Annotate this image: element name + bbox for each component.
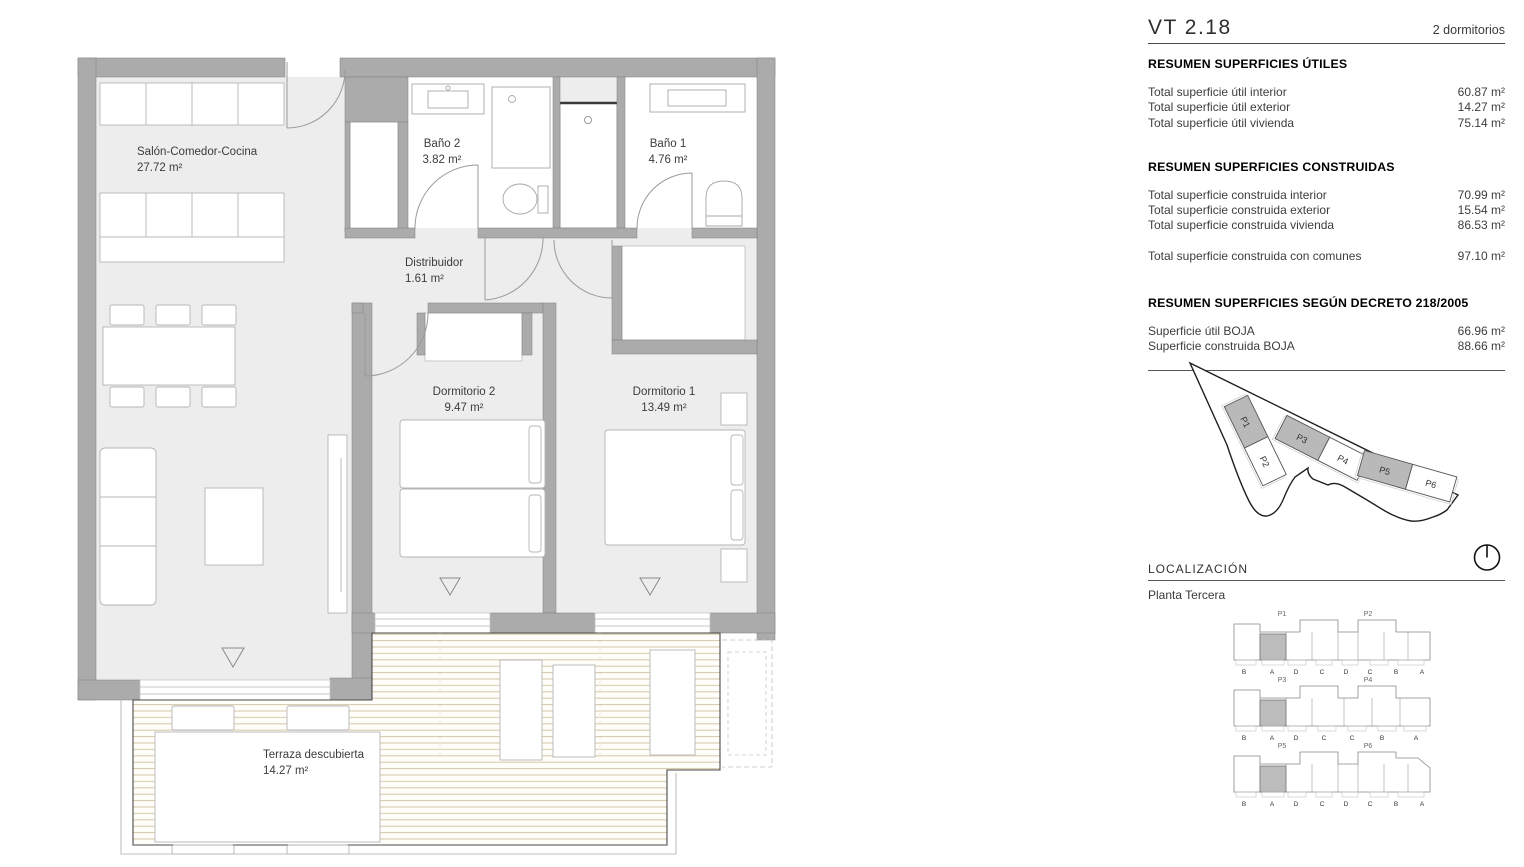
coffee-table: [205, 488, 263, 565]
terrace-chair: [172, 845, 234, 854]
terrace-chair: [172, 706, 234, 730]
unit-letter: D: [1294, 669, 1299, 676]
unit-title: VT 2.18: [1148, 20, 1232, 35]
table-row: Total superficie construida exterior 15.…: [1148, 203, 1505, 218]
portal-label: P2: [1364, 611, 1373, 618]
dorm1-window: [595, 613, 710, 633]
localizacion-block: LOCALIZACIÓN Planta Tercera: [1148, 562, 1505, 602]
pillow: [529, 495, 541, 552]
key-plan-row: P3 P4 B A D C C B A: [1234, 677, 1430, 742]
floor-plan: Salón-Comedor-Cocina 27.72 m² Baño 2 3.8…: [0, 0, 1130, 867]
kitchen-island: [100, 237, 284, 262]
portal-label: P4: [1364, 677, 1373, 684]
unit-letter: C: [1322, 735, 1327, 742]
chair: [110, 387, 144, 407]
sun-lounger-projection: [728, 652, 766, 755]
unit-letter: D: [1294, 801, 1299, 808]
room-area: 9.47 m²: [445, 402, 484, 414]
highlighted-unit: [1260, 700, 1286, 726]
dorm2-bed: [400, 420, 545, 488]
key-plan-row: P1 P2 B A D C D C B A: [1234, 611, 1430, 676]
room-label: Dormitorio 2: [433, 386, 496, 398]
terrace-chair: [287, 706, 349, 730]
chair: [202, 305, 236, 325]
nightstand: [721, 393, 747, 425]
dorm1-closet: [622, 246, 745, 340]
unit-letter: B: [1242, 735, 1246, 742]
room-area: 1.61 m²: [405, 273, 444, 285]
unit-letter: D: [1344, 669, 1349, 676]
section-title-utiles: RESUMEN SUPERFICIES ÚTILES: [1148, 57, 1505, 72]
tv-sideboard: [328, 435, 347, 613]
entry-closet: [350, 122, 398, 232]
unit-letter: D: [1294, 735, 1299, 742]
table-row: Total superficie construida interior 70.…: [1148, 188, 1505, 203]
unit-letter: B: [1242, 801, 1246, 808]
site-plan: P1 P2 P3 P4 P5 P6: [1185, 353, 1515, 538]
portal-label: P6: [1364, 743, 1373, 750]
localizacion-title: LOCALIZACIÓN: [1148, 562, 1505, 581]
section-title-decreto: RESUMEN SUPERFICIES SEGÚN DECRETO 218/20…: [1148, 296, 1505, 311]
unit-letter: C: [1368, 801, 1373, 808]
summary-panel: VT 2.18 2 dormitorios RESUMEN SUPERFICIE…: [1148, 0, 1505, 371]
key-plan-row: P5 P6 B A D C D C B A: [1234, 743, 1430, 808]
plan-sheet: Salón-Comedor-Cocina 27.72 m² Baño 2 3.8…: [0, 0, 1524, 867]
unit-letter: B: [1394, 801, 1398, 808]
unit-letter: C: [1320, 669, 1325, 676]
nightstand: [721, 549, 747, 582]
unit-letter: C: [1350, 735, 1355, 742]
dining-table: [103, 327, 235, 385]
table-row: Total superficie útil interior 60.87 m²: [1148, 85, 1505, 100]
sun-lounger: [650, 650, 695, 755]
bath2-faucet-icon: [446, 86, 450, 90]
chair: [202, 387, 236, 407]
table-row: Total superficie útil exterior 14.27 m²: [1148, 100, 1505, 115]
table-row: Superficie útil BOJA 66.96 m²: [1148, 324, 1505, 339]
sun-lounger: [553, 665, 595, 757]
bath1-toilet: [706, 181, 742, 226]
laundry-column: [560, 103, 617, 228]
room-label: Salón-Comedor-Cocina: [137, 146, 258, 158]
unit-letter: B: [1380, 735, 1384, 742]
unit-letter: A: [1414, 735, 1419, 742]
room-area: 3.82 m²: [423, 154, 462, 166]
room-area: 13.49 m²: [641, 402, 687, 414]
unit-letter: A: [1270, 801, 1275, 808]
bath2-toilet-tank: [538, 186, 548, 213]
sofa: [100, 448, 156, 605]
table-row: Total superficie útil vivienda 75.14 m²: [1148, 116, 1505, 131]
chair: [110, 305, 144, 325]
room-label: Distribuidor: [405, 257, 463, 269]
unit-letter: A: [1420, 669, 1425, 676]
unit-letter: A: [1270, 735, 1275, 742]
portal-label: P1: [1278, 611, 1287, 618]
table-row-total: Total superficie construida con comunes …: [1148, 249, 1505, 264]
sun-lounger: [500, 660, 542, 760]
unit-letter: A: [1420, 801, 1425, 808]
location-key-plans: P1 P2 B A D C D C B A P3: [1232, 608, 1434, 820]
bath2-shower: [492, 87, 550, 168]
chair: [156, 305, 190, 325]
bath2-sink-basin: [428, 91, 468, 108]
unit-letter: B: [1242, 669, 1246, 676]
unit-letter: A: [1270, 669, 1275, 676]
dorm2-window: [375, 613, 490, 633]
construidas-rows: Total superficie construida interior 70.…: [1148, 188, 1505, 264]
dorm2-wardrobe: [425, 313, 522, 361]
dorm1-bed: [605, 430, 745, 545]
room-label: Terraza descubierta: [263, 749, 365, 761]
decreto-rows: Superficie útil BOJA 66.96 m² Superficie…: [1148, 324, 1505, 355]
section-title-construidas: RESUMEN SUPERFICIES CONSTRUIDAS: [1148, 160, 1505, 175]
terrace-projection: [722, 640, 772, 767]
bath2-toilet: [503, 184, 537, 214]
terrace-chair: [287, 845, 349, 854]
floor-name: Planta Tercera: [1148, 588, 1505, 602]
pillow: [529, 426, 541, 483]
sheet-header: VT 2.18 2 dormitorios: [1148, 0, 1505, 44]
pillow: [731, 490, 743, 540]
unit-letter: C: [1368, 669, 1373, 676]
room-area: 4.76 m²: [649, 154, 688, 166]
table-row: Total superficie construida vivienda 86.…: [1148, 218, 1505, 233]
highlighted-unit: [1260, 634, 1286, 660]
room-label: Dormitorio 1: [633, 386, 696, 398]
pillow: [731, 435, 743, 485]
room-area: 14.27 m²: [263, 765, 309, 777]
salon-window: [140, 680, 330, 700]
portal-label: P3: [1278, 677, 1287, 684]
utiles-rows: Total superficie útil interior 60.87 m² …: [1148, 85, 1505, 131]
unit-letter: B: [1394, 669, 1398, 676]
unit-letter: C: [1320, 801, 1325, 808]
bath1-sink-basin: [668, 90, 726, 106]
chair: [156, 387, 190, 407]
room-label: Baño 1: [650, 138, 686, 150]
unit-letter: D: [1344, 801, 1349, 808]
room-area: 27.72 m²: [137, 162, 183, 174]
highlighted-unit: [1260, 766, 1286, 792]
room-label: Baño 2: [424, 138, 460, 150]
dorm2-bed: [400, 489, 545, 557]
portal-label: P5: [1278, 743, 1287, 750]
unit-type: 2 dormitorios: [1433, 23, 1505, 38]
